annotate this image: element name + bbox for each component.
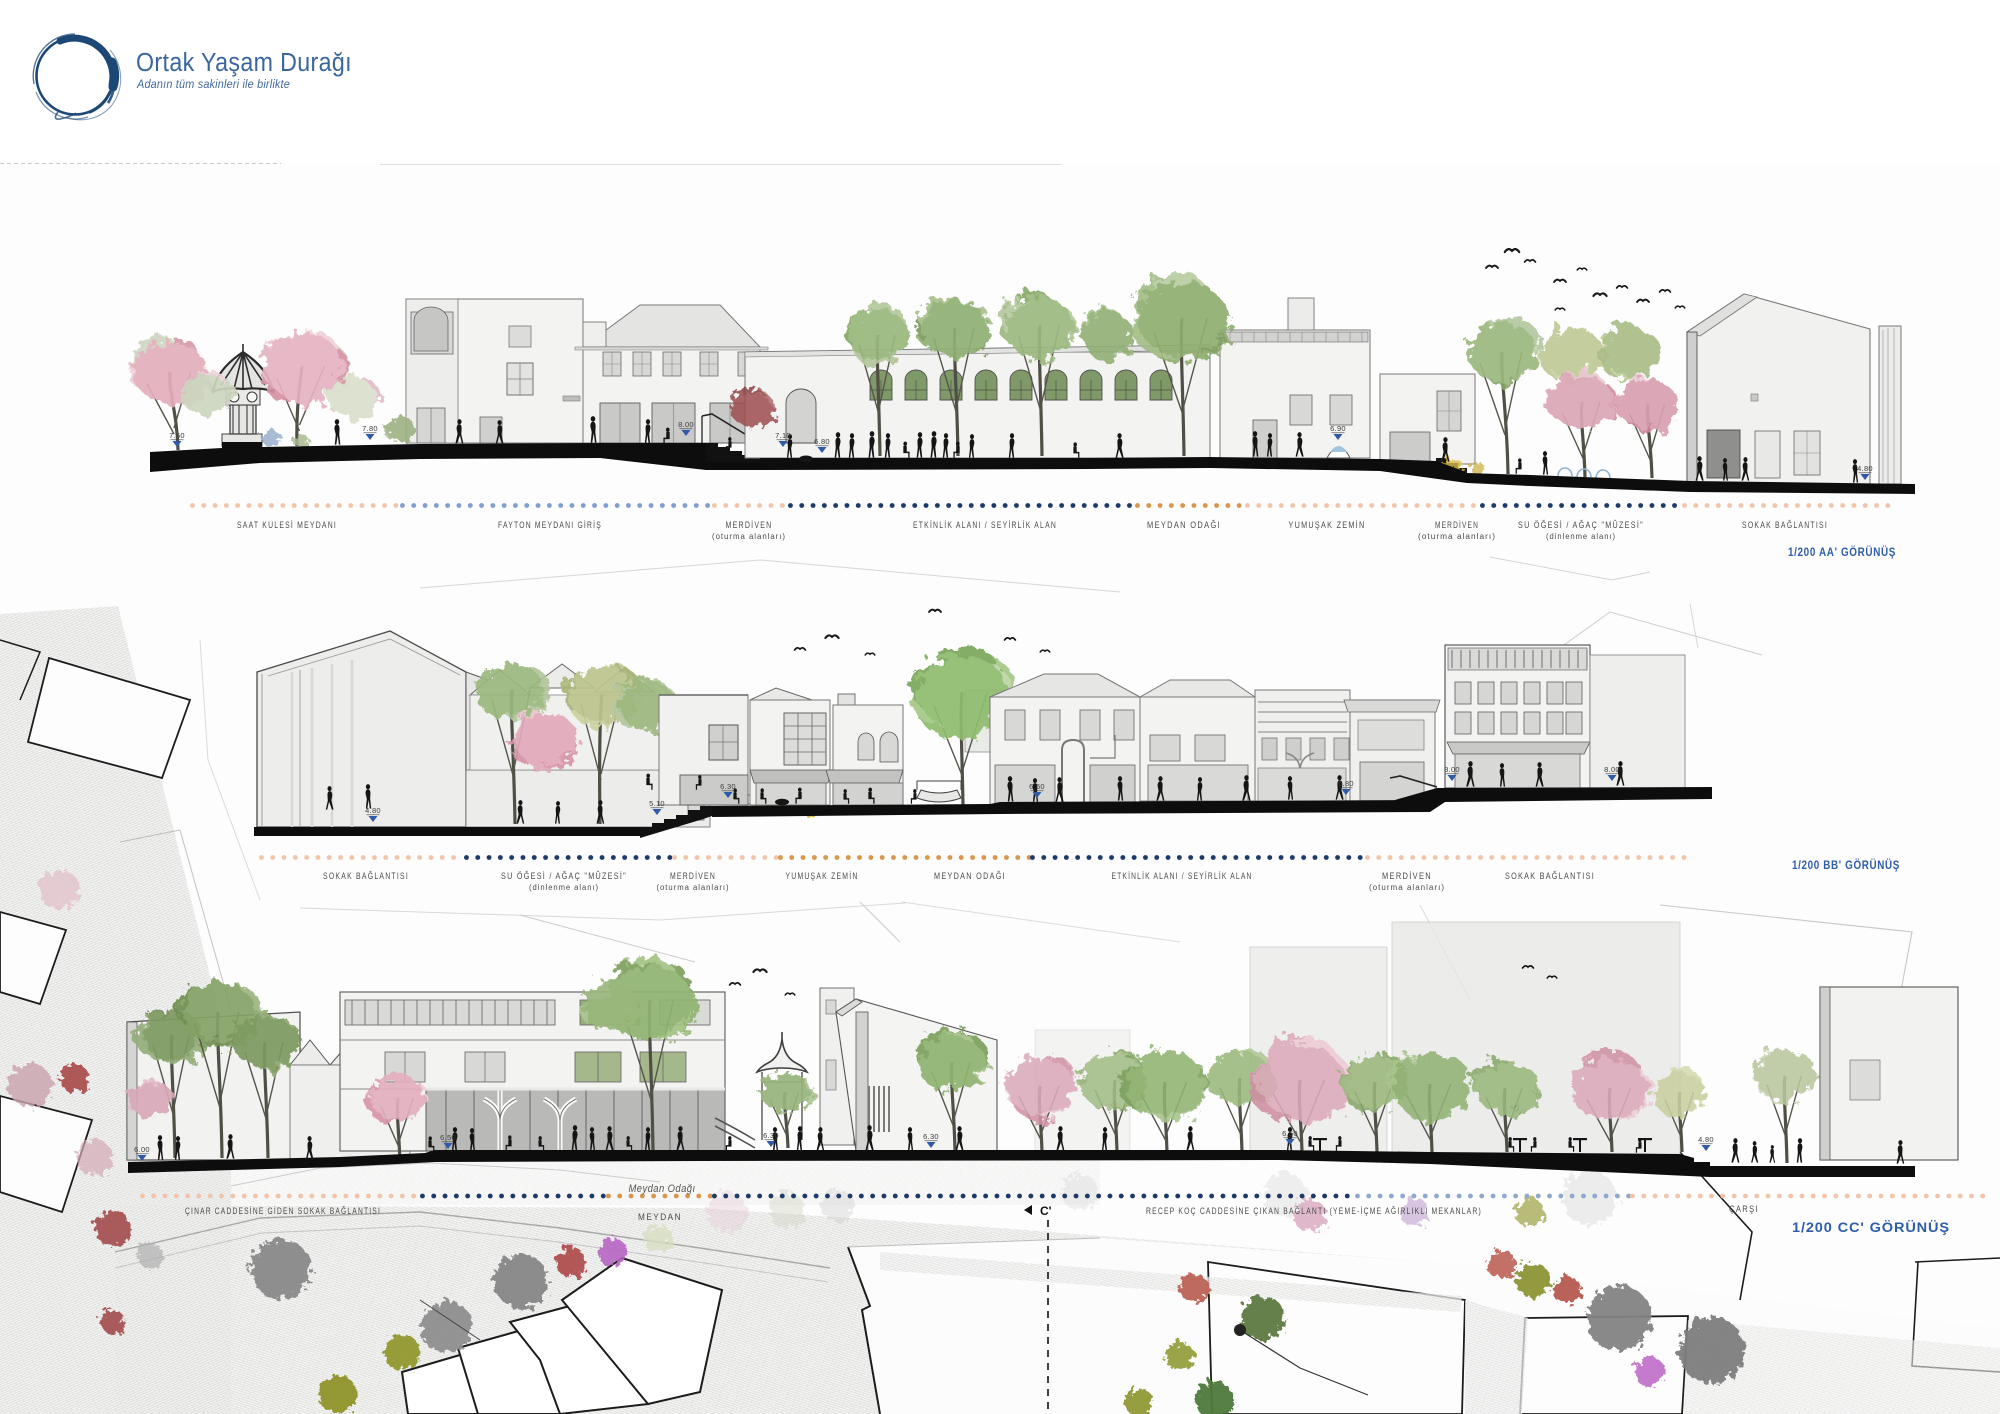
- svg-text:4.80: 4.80: [1857, 464, 1873, 473]
- svg-text:4.80: 4.80: [365, 806, 381, 815]
- svg-text:8.00: 8.00: [678, 420, 694, 429]
- svg-text:6.50: 6.50: [440, 1133, 456, 1142]
- svg-text:6.80: 6.80: [1338, 779, 1354, 788]
- svg-text:1/200 AA' GÖRÜNÜŞ: 1/200 AA' GÖRÜNÜŞ: [1788, 544, 1896, 559]
- svg-text:8.00: 8.00: [1444, 765, 1460, 774]
- svg-text:6.30: 6.30: [763, 1131, 779, 1140]
- svg-text:SOKAK BAĞLANTISI: SOKAK BAĞLANTISI: [1505, 871, 1595, 882]
- svg-text:RECEP KOÇ CADDESİNE ÇIKAN BAĞL: RECEP KOÇ CADDESİNE ÇIKAN BAĞLANTI (YEME…: [1146, 1206, 1482, 1217]
- svg-text:6.90: 6.90: [1330, 424, 1346, 433]
- svg-text:ÇARŞI: ÇARŞI: [1729, 1204, 1759, 1215]
- svg-text:4.80: 4.80: [1698, 1135, 1714, 1144]
- svg-text:(dinlenme alanı): (dinlenme alanı): [529, 883, 599, 892]
- svg-text:MERDİVEN: MERDİVEN: [1435, 520, 1479, 531]
- svg-text:(oturma alanları): (oturma alanları): [1369, 883, 1445, 892]
- svg-text:(dinlenme alanı): (dinlenme alanı): [1546, 532, 1616, 541]
- svg-text:7.10: 7.10: [775, 431, 791, 440]
- svg-text:(oturma alanları): (oturma alanları): [657, 883, 730, 892]
- svg-text:Ortak Yaşam Durağı: Ortak Yaşam Durağı: [136, 49, 352, 77]
- svg-text:(oturma alanları): (oturma alanları): [1418, 532, 1496, 541]
- svg-text:6.30: 6.30: [720, 782, 736, 791]
- svg-text:MERDİVEN: MERDİVEN: [670, 871, 716, 882]
- svg-text:6.00: 6.00: [134, 1145, 150, 1154]
- svg-text:Adanın tüm sakinleri ile birli: Adanın tüm sakinleri ile birlikte: [136, 77, 290, 91]
- svg-text:MERDİVEN: MERDİVEN: [726, 520, 773, 531]
- svg-text:SOKAK BAĞLANTISI: SOKAK BAĞLANTISI: [1742, 520, 1828, 531]
- svg-text:SOKAK BAĞLANTISI: SOKAK BAĞLANTISI: [323, 871, 409, 882]
- svg-text:C': C': [1040, 1204, 1052, 1218]
- svg-text:ETKİNLİK ALANI / SEYİRLİK ALAN: ETKİNLİK ALANI / SEYİRLİK ALAN: [1112, 871, 1253, 882]
- svg-text:MEYDAN: MEYDAN: [638, 1212, 682, 1223]
- svg-text:6.50: 6.50: [1282, 1129, 1298, 1138]
- svg-text:YUMUŞAK ZEMİN: YUMUŞAK ZEMİN: [1289, 520, 1366, 531]
- svg-text:(oturma alanları): (oturma alanları): [712, 532, 786, 541]
- svg-text:6.30: 6.30: [923, 1132, 939, 1141]
- svg-text:5.10: 5.10: [649, 799, 665, 808]
- svg-text:ETKİNLİK ALANI / SEYİRLİK ALAN: ETKİNLİK ALANI / SEYİRLİK ALAN: [913, 520, 1057, 531]
- svg-text:MEYDAN ODAĞI: MEYDAN ODAĞI: [934, 871, 1006, 882]
- svg-text:6.80: 6.80: [814, 437, 830, 446]
- svg-text:Meydan Odağı: Meydan Odağı: [629, 1183, 696, 1195]
- svg-text:7.50: 7.50: [169, 431, 185, 440]
- svg-text:SAAT KULESİ MEYDANI: SAAT KULESİ MEYDANI: [237, 520, 337, 531]
- svg-text:7.80: 7.80: [362, 424, 378, 433]
- svg-text:MEYDAN ODAĞI: MEYDAN ODAĞI: [1147, 520, 1221, 531]
- svg-text:1/200 CC' GÖRÜNÜŞ: 1/200 CC' GÖRÜNÜŞ: [1792, 1220, 1950, 1235]
- svg-text:SU ÖĞESİ / AĞAÇ "MÛZESİ": SU ÖĞESİ / AĞAÇ "MÛZESİ": [501, 871, 627, 882]
- svg-text:8.00: 8.00: [1604, 765, 1620, 774]
- svg-text:SU ÖĞESİ / AĞAÇ "MÛZESİ": SU ÖĞESİ / AĞAÇ "MÛZESİ": [1518, 520, 1644, 531]
- svg-text:1/200 BB' GÖRÜNÜŞ: 1/200 BB' GÖRÜNÜŞ: [1792, 857, 1900, 872]
- svg-text:FAYTON MEYDANI GİRİŞ: FAYTON MEYDANI GİRİŞ: [498, 520, 602, 531]
- svg-text:6.50: 6.50: [1029, 782, 1045, 791]
- svg-text:YUMUŞAK ZEMİN: YUMUŞAK ZEMİN: [786, 871, 859, 882]
- svg-text:MERDİVEN: MERDİVEN: [1382, 871, 1432, 882]
- svg-text:ÇINAR CADDESİNE GİDEN SOKAK BA: ÇINAR CADDESİNE GİDEN SOKAK BAĞLANTISI: [185, 1206, 381, 1217]
